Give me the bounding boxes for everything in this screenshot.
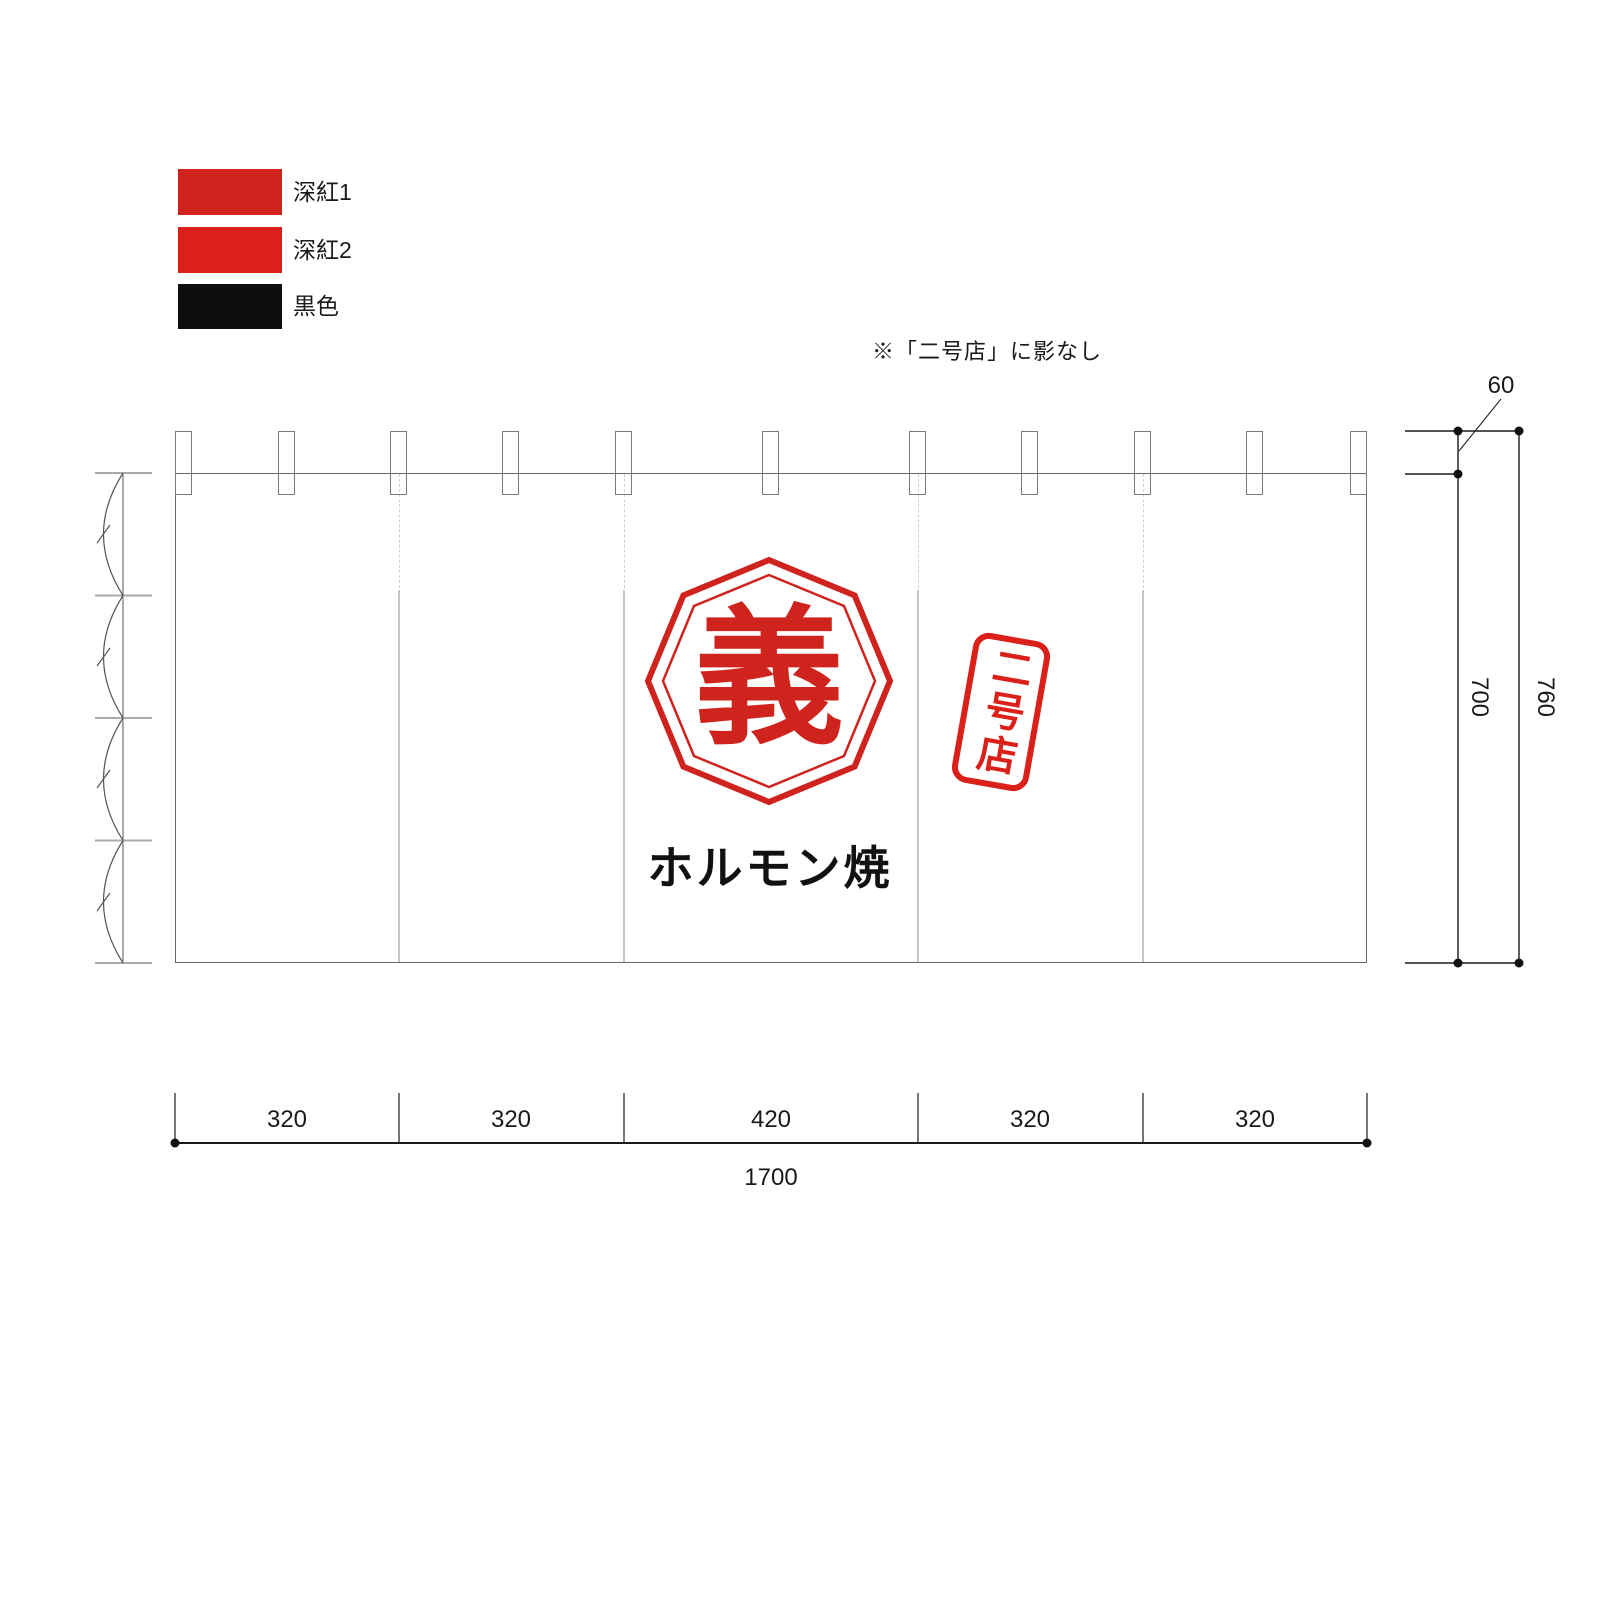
dim-label-60: 60 [1479,372,1523,400]
legend-label-red2: 深紅2 [293,227,493,273]
fold-arcs [97,473,123,963]
hanging-tab-4 [502,431,519,495]
hanging-tab-11 [1350,431,1367,495]
width-dimension-dots [171,1139,1372,1148]
legend-label-black: 黒色 [293,284,493,329]
logo-kanji-gi: 義 [669,578,869,778]
color-swatch-black [178,284,282,329]
dim-label-panel-4: 320 [980,1106,1080,1134]
hanging-tab-8 [1021,431,1038,495]
legend-label-red1: 深紅1 [293,169,493,215]
noren-spec-sheet: 深紅1 深紅2 黒色 ※「二号店」に影なし 義 二号店 ホルモン焼 [0,0,1600,1600]
shop-name-text: ホルモン焼 [620,832,920,898]
hanging-tab-9 [1134,431,1151,495]
hanging-tab-7 [909,431,926,495]
height-dimension-lines [1405,399,1519,963]
hanging-tab-10 [1246,431,1263,495]
dim-label-panel-2: 320 [461,1106,561,1134]
dim-label-760: 760 [1531,677,1559,717]
color-swatch-red1 [178,169,282,215]
fold-marks [95,473,152,963]
panel-seam-solid-1 [398,590,400,962]
stamp-text: 二号店 [961,642,1041,782]
dim-label-panel-3: 420 [721,1106,821,1134]
dim-label-700: 700 [1465,677,1493,717]
dim-label-1700: 1700 [711,1164,831,1192]
hanging-tab-5 [615,431,632,495]
hanging-tab-2 [278,431,295,495]
shadow-note: ※「二号店」に影なし [872,334,1102,366]
hanging-tab-6 [762,431,779,495]
dim-label-panel-5: 320 [1205,1106,1305,1134]
hanging-tab-1 [175,431,192,495]
panel-seam-solid-3 [917,590,919,962]
panel-seam-solid-4 [1142,590,1144,962]
hanging-tab-3 [390,431,407,495]
color-swatch-red2 [178,227,282,273]
dim-label-panel-1: 320 [237,1106,337,1134]
panel-seam-solid-2 [623,590,625,962]
